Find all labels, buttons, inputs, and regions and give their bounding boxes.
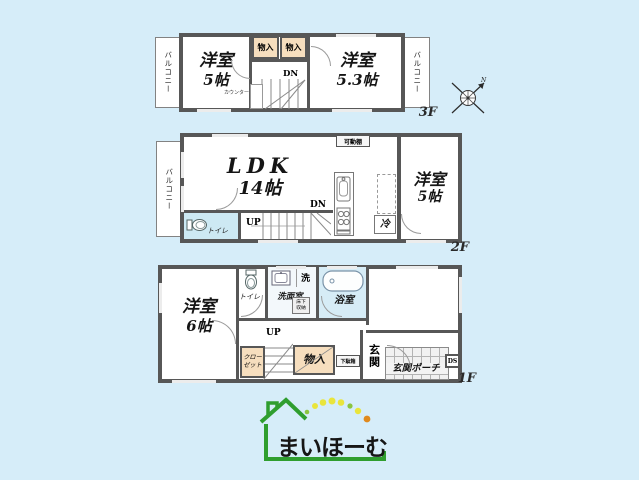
room-east-2f-size: 5帖 xyxy=(418,189,442,206)
window xyxy=(336,34,376,37)
fridge-label-box-2f: 冷 xyxy=(374,215,396,234)
wall xyxy=(296,267,297,287)
floor-label-2f: 2F xyxy=(443,240,469,255)
window xyxy=(406,240,446,243)
stair-up-label-1f: UP xyxy=(266,328,286,338)
room-west-3f-name: 洋室 xyxy=(199,51,233,71)
balcony-left-3f-label: バルコニー xyxy=(164,51,172,94)
wall xyxy=(239,318,369,321)
fridge-label-2f: 冷 xyxy=(380,219,390,231)
floor-label-1f: 1F xyxy=(450,371,476,386)
washer-label-1f: 洗 xyxy=(301,271,315,284)
stair-down-label-2f: DN xyxy=(310,200,330,210)
window xyxy=(276,266,306,269)
stairs-1f xyxy=(263,340,293,380)
window xyxy=(327,266,357,269)
wall xyxy=(307,33,310,112)
window xyxy=(159,283,162,313)
window xyxy=(212,134,248,137)
floor-1f: 洋室 6帖 トイレ 洗 洗面室 床下 収納 浴室 xyxy=(0,255,639,395)
floor-2f: バルコニー LDK 14帖 可動棚 冷 洋室 5帖 xyxy=(0,130,639,255)
balcony-left-2f-label: バルコニー xyxy=(165,168,173,211)
compass-north-icon: N xyxy=(447,76,489,120)
balcony-right-3f: バルコニー xyxy=(404,37,430,108)
kitchen-counter xyxy=(334,172,354,236)
toilet-icon-2f xyxy=(186,216,208,234)
bathtub-icon xyxy=(322,270,364,292)
window xyxy=(459,277,462,313)
window xyxy=(396,266,438,269)
window xyxy=(197,109,231,112)
shelf-box-2f: 可動棚 xyxy=(336,135,370,147)
balcony-left-2f: バルコニー xyxy=(156,141,182,237)
storage-1f: 物入 xyxy=(293,345,335,375)
closet-line2: ゼット xyxy=(243,362,262,370)
washbasin-icon xyxy=(271,270,291,286)
storage-diagonal xyxy=(295,347,333,373)
storage-closet-2-3f-label: 物入 xyxy=(286,42,302,53)
underfloor-storage-box: 床下 収納 xyxy=(292,297,310,314)
counter-label-3f: カウンター xyxy=(224,89,250,96)
entrance-label-1f: 玄関 xyxy=(369,344,380,368)
ldk-name: LDK xyxy=(227,153,293,178)
window xyxy=(258,240,298,243)
wall xyxy=(236,265,239,383)
closet-line1: クロー xyxy=(243,354,262,362)
duct-label: DS xyxy=(448,358,458,365)
room-east-2f: 洋室 5帖 xyxy=(401,160,458,215)
room-1f-name: 洋室 xyxy=(182,297,216,317)
floor-3f: バルコニー バルコニー 洋室 5帖 洋室 5.3帖 物入 物入 DN xyxy=(0,0,639,130)
wall xyxy=(366,330,462,333)
window xyxy=(181,186,184,212)
duct-space-box: DS xyxy=(445,354,460,368)
closet-1f: クロー ゼット xyxy=(240,346,265,378)
balcony-left-3f: バルコニー xyxy=(155,37,181,108)
window xyxy=(172,380,216,383)
toilet-label-2f: トイレ xyxy=(207,226,235,236)
room-east-2f-name: 洋室 xyxy=(413,170,445,189)
toilet-icon-1f xyxy=(243,269,259,290)
balcony-right-3f-label: バルコニー xyxy=(413,51,421,94)
wall xyxy=(238,210,241,243)
shelf-label-2f: 可動棚 xyxy=(344,137,362,146)
room-east-3f-size: 5.3帖 xyxy=(336,71,377,89)
company-logo: まいほーむ xyxy=(253,392,403,476)
counter-3f xyxy=(250,84,263,109)
window xyxy=(181,152,184,178)
logo-dot-arc xyxy=(305,398,371,423)
window xyxy=(332,109,372,112)
shoebox-1f: 下駄箱 xyxy=(336,355,360,367)
room-east-3f-name: 洋室 xyxy=(340,51,374,71)
shoebox-label-1f: 下駄箱 xyxy=(340,358,355,365)
room-east-3f: 洋室 5.3帖 xyxy=(312,42,402,98)
wall xyxy=(252,59,307,62)
storage-closet-1-3f-label: 物入 xyxy=(258,42,274,53)
storage-closet-1-3f: 物入 xyxy=(252,36,279,59)
room-west-3f-size: 5帖 xyxy=(203,71,228,89)
fridge-space-2f xyxy=(377,174,396,214)
ldk-size: 14帖 xyxy=(238,178,281,200)
compass-n-label: N xyxy=(480,77,487,84)
room-1f-size: 6帖 xyxy=(186,317,211,335)
stair-down-label-3f: DN xyxy=(283,69,305,79)
ldk-room-2f: LDK 14帖 xyxy=(195,146,325,206)
floorplan-canvas: バルコニー バルコニー 洋室 5帖 洋室 5.3帖 物入 物入 DN xyxy=(0,0,639,480)
storage-closet-2-3f: 物入 xyxy=(280,36,307,59)
underfloor-line2: 収納 xyxy=(296,306,306,312)
wall xyxy=(360,330,363,383)
wall xyxy=(366,265,369,325)
entrance-1f: 玄関 xyxy=(364,335,384,377)
logo-text: まいほーむ xyxy=(277,428,387,462)
stair-up-label-2f: UP xyxy=(246,218,266,228)
floor-label-3f: 3F xyxy=(411,105,437,120)
